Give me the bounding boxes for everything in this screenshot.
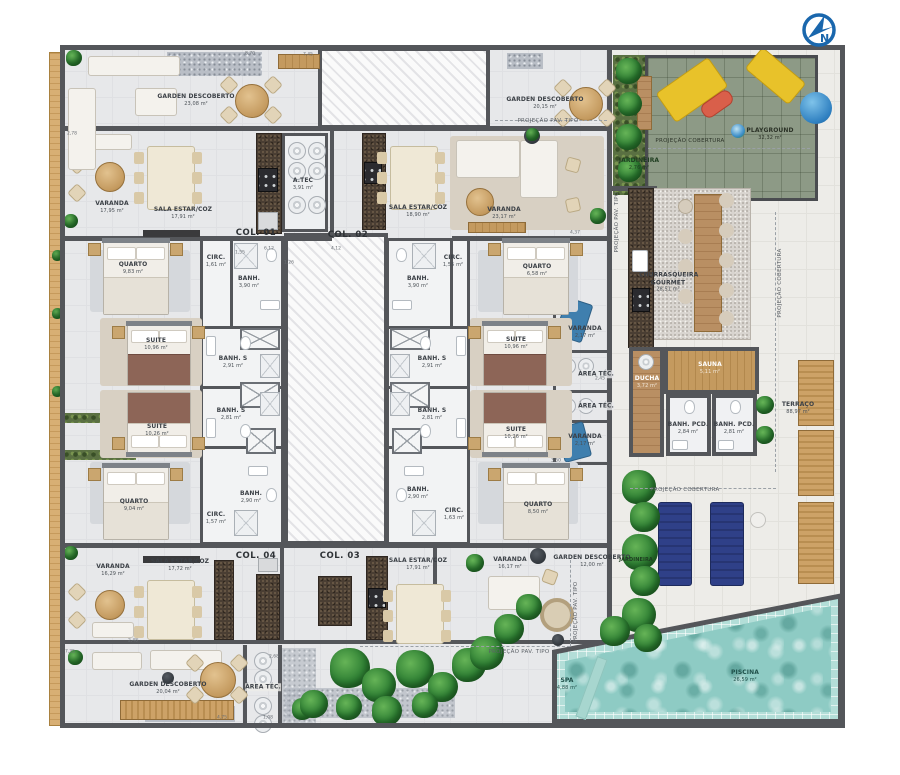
room-label-quarto-bl: QUARTO9,04 m² xyxy=(120,498,149,512)
room-label-jardineira-1: JARDINEIRA2,76 m² xyxy=(619,157,659,171)
room-label-sauna: SAUNA5,11 m² xyxy=(698,361,722,375)
room-label-quarto-br: QUARTO8,50 m² xyxy=(524,501,553,515)
room-label-suite2-l: SUITE10,26 m² xyxy=(145,423,169,437)
projection-label-cobertura: PROJEÇÃO COBERTURA xyxy=(650,487,719,493)
room-label-circ-br: CIRC.1,63 m² xyxy=(444,507,464,521)
projection-label-cobertura: PROJEÇÃO COBERTURA xyxy=(655,138,724,144)
room-label-suite2-r: SUITE10,26 m² xyxy=(504,426,528,440)
room-label-atec-bl: ÁREA TÉC. xyxy=(245,683,281,691)
room-label-banh-br: BANH.2,90 m² xyxy=(407,486,429,500)
room-label-banhs2-r: BANH. S2,81 m² xyxy=(418,407,447,421)
room-label-jardineira-2: JARDINEIRA xyxy=(619,557,653,563)
floor-plan-canvas: GARDEN DESCOBERTO23,08 m² VARANDA17,95 m… xyxy=(0,0,900,775)
dimension-text: 1,08 xyxy=(263,716,273,721)
room-label-sala-bl: SALA ESTAR/COZ17,72 m² xyxy=(151,558,209,572)
dimension-text: 2,48 xyxy=(128,639,138,644)
dimension-text: 7,45 xyxy=(303,53,313,58)
dimension-text: 8,70 xyxy=(245,52,255,57)
room-label-banh-tr: BANH.3,90 m² xyxy=(407,275,429,289)
dimension-text: 6,12 xyxy=(264,247,274,252)
dimension-text: 2,78 xyxy=(67,132,77,137)
room-label-churrasqueira: CHURRASQUEIRA GOURMET28,51 m² xyxy=(639,271,697,292)
room-label-banh-tl: BANH.3,90 m² xyxy=(238,275,260,289)
dimension-text: 3,50 xyxy=(551,459,561,464)
projection-label-pav-tipo: PROJEÇÃO PAV. TIPO xyxy=(488,649,549,655)
dimension-text: 4,75 xyxy=(217,716,227,721)
column-label-04: COL. 04 xyxy=(236,551,276,561)
room-label-varanda-bl: VARANDA16,29 m² xyxy=(96,563,130,577)
room-label-banhs1-r: BANH. S2,91 m² xyxy=(418,355,447,369)
column-label-01: COL. 01 xyxy=(236,228,276,238)
room-label-garden-tl: GARDEN DESCOBERTO23,08 m² xyxy=(157,93,234,107)
room-label-terraco: TERRAÇO88,97 m² xyxy=(782,401,814,415)
north-arrow-icon: N xyxy=(795,6,843,54)
room-label-circ-tr: CIRC.1,55 m² xyxy=(443,254,463,268)
room-label-banh-bl: BANH.2,90 m² xyxy=(240,490,262,504)
dimension-text: 4,12 xyxy=(331,247,341,252)
dimension-text: 2,68 xyxy=(269,655,279,660)
projection-label-pav-tipo: PROJEÇÃO PAV. TIPO xyxy=(517,118,578,124)
room-label-garden-bl: GARDEN DESCOBERTO20,04 m² xyxy=(129,681,206,695)
dimension-text: 1,26 xyxy=(284,261,294,266)
room-label-varanda-bm: VARANDA16,17 m² xyxy=(493,556,527,570)
room-label-ducha: DUCHA3,72 m² xyxy=(635,375,659,389)
column-label-03: COL. 03 xyxy=(320,551,360,561)
building-outline xyxy=(60,45,845,728)
room-label-sala-tl: SALA ESTAR/COZ17,91 m² xyxy=(154,206,212,220)
room-label-banhs1-l: BANH. S2,91 m² xyxy=(219,355,248,369)
room-label-atec-tl: A.TEC3,91 m² xyxy=(293,177,313,191)
dimension-text: 4,37 xyxy=(570,231,580,236)
room-label-sala-tm: SALA ESTAR/COZ18,90 m² xyxy=(389,204,447,218)
room-label-piscina: PISCINA26,59 m² xyxy=(731,669,759,683)
svg-text:N: N xyxy=(820,32,829,45)
room-label-quarto-tr: QUARTO6,58 m² xyxy=(523,263,552,277)
dimension-text: 1,55 xyxy=(235,251,245,256)
dimension-text: 2,45 xyxy=(595,377,605,382)
room-label-banpcd-1: BANH. PCD.2,84 m² xyxy=(668,421,709,435)
room-label-varanda-tm: VARANDA23,17 m² xyxy=(487,206,521,220)
room-label-quarto-tl: QUARTO9,83 m² xyxy=(119,261,148,275)
room-label-circ-tl: CIRC.1,61 m² xyxy=(206,254,226,268)
room-label-varanda-tl: VARANDA17,95 m² xyxy=(95,200,129,214)
projection-label-pav-tipo: PROJEÇÃO PAV. TIPO xyxy=(573,581,579,642)
dimension-text: 7,35 xyxy=(65,650,75,655)
projection-label-pav-tipo: PROJEÇÃO PAV. TIPO xyxy=(614,191,620,252)
room-label-garden-tm: GARDEN DESCOBERTO20,15 m² xyxy=(506,96,583,110)
room-label-varanda-r2: VARANDA2,17 m² xyxy=(568,433,602,447)
room-label-banhs2-l: BANH. S2,81 m² xyxy=(217,407,246,421)
room-label-banpcd-2: BANH. PCD.2,81 m² xyxy=(714,421,755,435)
room-label-suite1-r: SUITE10,96 m² xyxy=(504,336,528,350)
room-label-circ-bl: CIRC.1,57 m² xyxy=(206,511,226,525)
room-label-varanda-r1: VARANDA2,17 m² xyxy=(568,325,602,339)
room-label-suite1-l: SUITE10,96 m² xyxy=(144,337,168,351)
room-label-sala-bm: SALA ESTAR/COZ17,91 m² xyxy=(389,557,447,571)
room-label-atec-r2: ÁREA TÉC. xyxy=(578,402,614,410)
room-label-spa: SPA4,88 m² xyxy=(557,677,577,691)
column-label-02: COL. 02 xyxy=(328,230,368,240)
projection-label-cobertura: PROJEÇÃO COBERTURA xyxy=(777,248,783,317)
room-label-playground: PLAYGROUND32,32 m² xyxy=(746,127,793,141)
